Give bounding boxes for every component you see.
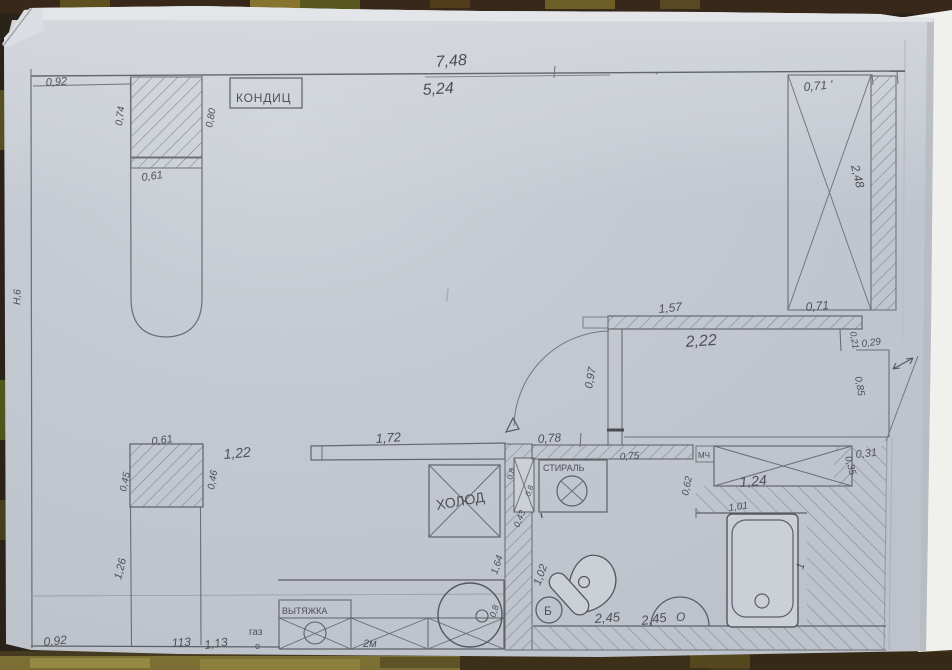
svg-text:0,78: 0,78	[537, 430, 562, 446]
svg-text:0,92: 0,92	[43, 633, 68, 649]
svg-text:1,72: 1,72	[375, 429, 402, 446]
svg-text:113: 113	[171, 635, 191, 650]
svg-text:МЧ: МЧ	[698, 451, 710, 460]
svg-text:ВЫТЯЖКА: ВЫТЯЖКА	[282, 606, 327, 616]
svg-text:О: О	[676, 610, 685, 624]
svg-text:0,71 ': 0,71 '	[803, 77, 834, 94]
svg-text:1,57: 1,57	[658, 299, 684, 316]
svg-text:0,75: 0,75	[619, 451, 640, 463]
svg-text:0,71: 0,71	[805, 298, 829, 314]
svg-text:2м: 2м	[362, 638, 377, 650]
svg-text:Б: Б	[544, 604, 552, 618]
svg-text:о: о	[255, 641, 260, 651]
svg-text:СТИРАЛЬ: СТИРАЛЬ	[543, 463, 585, 473]
svg-text:5,24: 5,24	[422, 80, 454, 99]
svg-text:КОНДИЦ: КОНДИЦ	[236, 91, 291, 105]
svg-text:0,92: 0,92	[45, 76, 67, 89]
svg-text:газ: газ	[249, 627, 263, 638]
svg-text:2,22: 2,22	[684, 332, 717, 351]
svg-text:Н,6: Н,6	[12, 289, 24, 305]
svg-text:1,22: 1,22	[223, 444, 252, 462]
svg-text:2,45: 2,45	[593, 609, 621, 626]
svg-text:7,48: 7,48	[435, 52, 467, 71]
